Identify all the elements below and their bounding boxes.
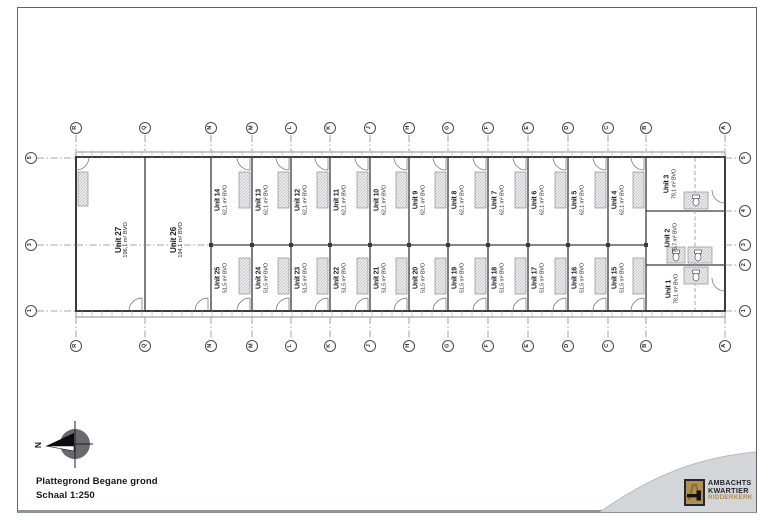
- title-block: Plattegrond Begane grond Schaal 1:250: [36, 475, 158, 504]
- drawing-scale: Schaal 1:250: [36, 489, 158, 503]
- page: RRQQNNMMLLKKJJHHGGFFEEDDCCBBAA53154321 U…: [0, 0, 780, 520]
- drawing-title: Plattegrond Begane grond: [36, 475, 158, 489]
- logo-text: AMBACHTS KWARTIER RIDDERKERK: [708, 479, 753, 502]
- logo-icon: [684, 479, 705, 506]
- logo-text-kwartier: KWARTIER: [708, 487, 753, 495]
- logo: AMBACHTS KWARTIER RIDDERKERK: [684, 479, 753, 506]
- north-label: N: [33, 442, 43, 448]
- compass-needle-outline: [46, 446, 74, 451]
- logo-text-ridderkerk: RIDDERKERK: [708, 494, 753, 502]
- compass-needle-solid: [46, 433, 74, 446]
